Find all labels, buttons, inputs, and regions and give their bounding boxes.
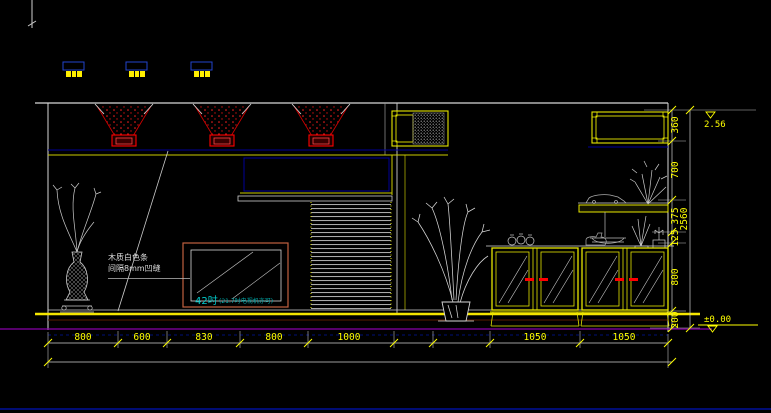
- top-left-reference-line: [28, 0, 36, 28]
- floor-lines: [0, 310, 771, 409]
- dim-total-label: 2560: [679, 207, 690, 230]
- left-flower-vase: [53, 183, 101, 312]
- center-plant: [412, 197, 490, 321]
- tv-wall-niche: [238, 155, 392, 201]
- ceiling-light-marker-icons: [63, 62, 212, 77]
- striped-wall-panel: [311, 202, 391, 310]
- spotlight-icon: [292, 104, 350, 146]
- wall-note: 木质白色条 间隔8mm凹缝: [108, 252, 190, 279]
- ceiling-beam-section: [392, 111, 448, 146]
- vases-icon: [508, 234, 534, 245]
- wall-diagonal-line: [118, 151, 168, 311]
- dim-label: 800: [74, 332, 91, 343]
- spotlight-icon: [95, 104, 153, 146]
- bottom-dimension-chain: 800 600 830 800 1000 1050 1050: [44, 331, 676, 368]
- tv: 42吋 (21.7吋电视机亦可): [183, 243, 288, 307]
- level-marker-top: 2.56: [704, 112, 726, 130]
- dim-label: 125: [670, 229, 681, 246]
- wall-note-line1: 木质白色条: [108, 252, 148, 262]
- cad-canvas: 42吋 (21.7吋电视机亦可) 木质白色条 间隔8mm凹缝: [0, 0, 771, 413]
- light-marker-icon: [191, 62, 212, 77]
- cabinet-handle: [615, 278, 624, 281]
- dim-label: 1050: [524, 332, 547, 343]
- dim-label: 200: [670, 311, 681, 328]
- dim-label: 700: [670, 161, 681, 178]
- dim-label: 360: [670, 116, 681, 133]
- spotlights: [95, 104, 350, 146]
- teapot-tray-icon: [580, 233, 620, 246]
- dim-label: 830: [195, 332, 212, 343]
- light-marker-icon: [126, 62, 147, 77]
- dim-label: 1050: [613, 332, 636, 343]
- cabinets: [486, 233, 674, 326]
- level-value: 2.56: [704, 120, 726, 130]
- pelmet-box: [592, 112, 668, 143]
- cabinet-handle: [525, 278, 534, 281]
- model-car-icon: [586, 195, 626, 204]
- dim-label: 600: [133, 332, 150, 343]
- cabinet-handle: [539, 278, 548, 281]
- tv-size-label: 42吋: [195, 295, 218, 307]
- dim-label: 800: [670, 268, 681, 285]
- display-shelf: [578, 161, 668, 254]
- light-marker-icon: [63, 62, 84, 77]
- spotlight-icon: [193, 104, 251, 146]
- tv-note-label: (21.7吋电视机亦可): [219, 297, 273, 305]
- shelf-plant-icon: [630, 161, 667, 204]
- dim-label: 1000: [338, 332, 361, 343]
- elevation-drawing: 42吋 (21.7吋电视机亦可) 木质白色条 间隔8mm凹缝: [0, 0, 771, 413]
- wall-note-line2: 间隔8mm凹缝: [108, 263, 161, 273]
- dim-label: 800: [265, 332, 282, 343]
- level-value: ±0.00: [704, 315, 731, 325]
- cabinet-handle: [629, 278, 638, 281]
- pendant-light-icon: [590, 212, 626, 243]
